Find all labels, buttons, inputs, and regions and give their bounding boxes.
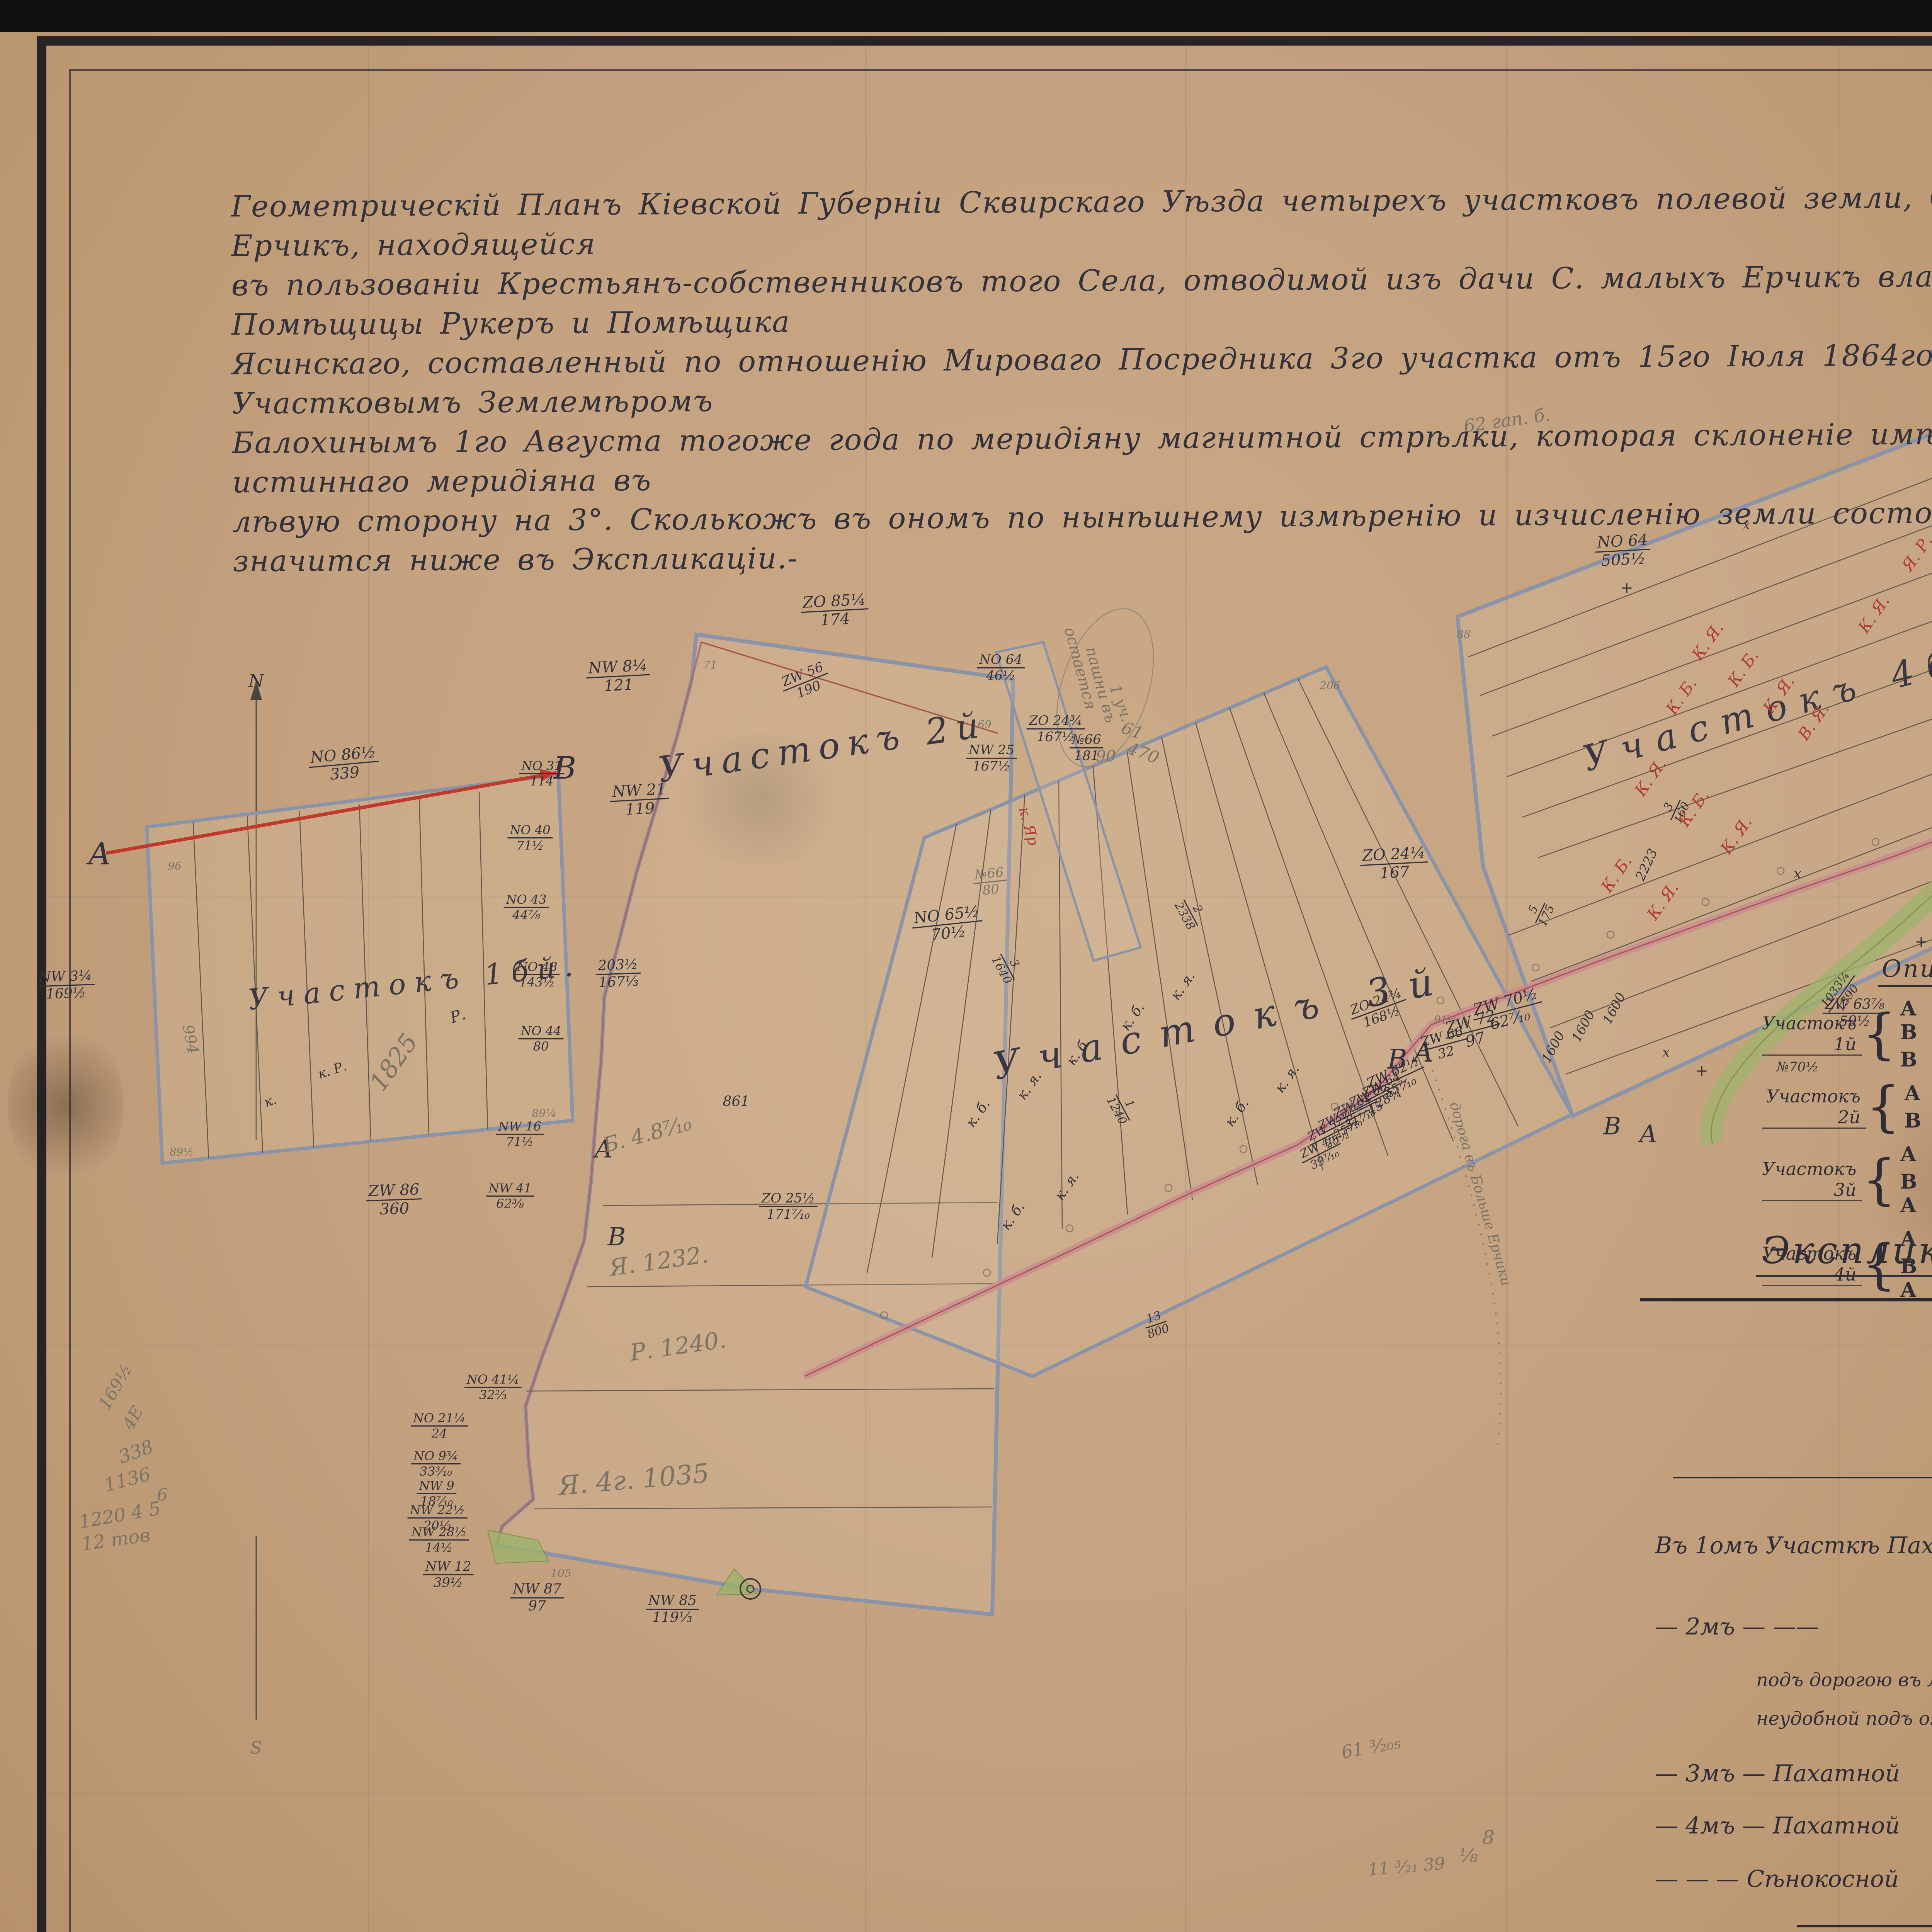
map-annotation: х bbox=[1662, 1046, 1670, 1060]
title-line-4: Балохинымъ 1го Августа тогоже года по ме… bbox=[232, 413, 1932, 502]
bearing-label: NW 8¼121 bbox=[585, 657, 651, 695]
map-annotation: 105 bbox=[551, 1568, 571, 1579]
map-annotation: N bbox=[248, 672, 264, 690]
map-annotation: 8 bbox=[1482, 1828, 1495, 1848]
bearing-label: ZW 86360 bbox=[366, 1182, 423, 1218]
adjacency-title: Описаніе смежностей bbox=[1878, 954, 1932, 987]
map-annotation: + bbox=[1620, 580, 1633, 596]
bearing-label: NW 21119 bbox=[609, 781, 670, 818]
bearing-label: NO 9¾33³⁄₁₀ bbox=[411, 1450, 461, 1478]
bearing-label: NW 1671½ bbox=[496, 1120, 544, 1148]
bearing-label: NO 6446½ bbox=[977, 653, 1025, 682]
map-sheet: 1 Геометрическій Планъ Кіевской Губерніи… bbox=[0, 12, 1932, 1932]
photo-edge-top bbox=[0, 0, 1932, 32]
title-line-1: Геометрическій Планъ Кіевской Губерніи С… bbox=[231, 177, 1932, 266]
bearing-label: ZO 85¼174 bbox=[800, 592, 869, 629]
bearing-label: NO 41¼32⅔ bbox=[464, 1373, 522, 1401]
map-annotation: S bbox=[250, 1740, 262, 1757]
bearing-label: NO 31114 bbox=[519, 760, 564, 787]
adjacency-entry: Участокъ 2й { А ВГ: Пп: Рукеръ и Ясинска… bbox=[1762, 1082, 1932, 1133]
bearing-label: NW 85119⅓ bbox=[646, 1594, 699, 1625]
bearing-label: ZO 25½171⁷⁄₁₀ bbox=[759, 1192, 818, 1221]
map-annotation: ⅛ bbox=[1459, 1846, 1478, 1866]
bearing-label: NW 3¼169½ bbox=[36, 969, 95, 1002]
map-annotation: 69 bbox=[978, 719, 992, 731]
map-annotation: А bbox=[1413, 1039, 1434, 1066]
brace: { bbox=[1866, 1084, 1900, 1130]
table-row: — 4мъ — Пахатной491951 bbox=[1640, 1812, 1932, 1848]
map-annotation: 861 bbox=[723, 1095, 750, 1109]
map-annotation: х bbox=[1743, 520, 1750, 532]
map-annotation: В bbox=[1387, 1046, 1407, 1073]
explication-table: Экспликація Десят. Сажень Въ 1омъ Участк… bbox=[1640, 1225, 1932, 1932]
map-annotation: х bbox=[1794, 867, 1801, 881]
bearing-label: NO 64505½ bbox=[1594, 532, 1651, 569]
brace: { bbox=[1862, 1157, 1896, 1203]
bearing-label: NO 86½339 bbox=[307, 744, 380, 784]
map-annotation: + bbox=[1915, 934, 1928, 950]
bearing-label: NW 8797 bbox=[510, 1582, 564, 1613]
bearing-label: NO 4344⅞ bbox=[503, 893, 549, 921]
bearing-label: ZO 24¼167 bbox=[1359, 845, 1429, 883]
title-line-5: лѣвую сторону на 3°. Сколькожъ въ ономъ … bbox=[233, 492, 1932, 581]
bearing-label: NW 25167½ bbox=[966, 743, 1017, 773]
table-row: — 3мъ — Пахатной53201 bbox=[1640, 1760, 1932, 1796]
map-annotation: В bbox=[1603, 1114, 1621, 1138]
map-annotation: 178 bbox=[1340, 1103, 1361, 1114]
explication-title: Экспликація bbox=[1756, 1229, 1932, 1277]
map-annotation: 88 bbox=[1457, 629, 1471, 640]
bearing-label: 203½167⅓ bbox=[595, 957, 641, 990]
map-title: Геометрическій Планъ Кіевской Губерніи С… bbox=[231, 177, 1932, 581]
map-annotation: 90 bbox=[1096, 749, 1116, 765]
map-annotation: 206 bbox=[1320, 680, 1340, 692]
bearing-label: №6680 bbox=[972, 865, 1009, 898]
map-annotation: В bbox=[607, 1225, 626, 1250]
table-row: — — — Сѣнокосной21857 bbox=[1640, 1866, 1932, 1901]
map-annotation: А bbox=[1639, 1121, 1658, 1146]
map-annotation: 71 bbox=[703, 660, 717, 671]
bearing-label: NW 28½14½ bbox=[409, 1526, 469, 1554]
map-annotation: 89½ bbox=[170, 1147, 194, 1158]
table-row: — 2мъ — ——43120 bbox=[1640, 1613, 1932, 1649]
bearing-label: NO 65½70½ bbox=[911, 903, 984, 945]
adjacency-entry: Участокъ 3й { А Вземли Г: Пп: Рукеръ и Я… bbox=[1762, 1143, 1932, 1217]
map-annotation: 89¼ bbox=[532, 1108, 556, 1119]
map-annotation: №70½ bbox=[1777, 1061, 1818, 1074]
map-annotation: А bbox=[88, 838, 112, 870]
map-annotation: + bbox=[1695, 1063, 1708, 1079]
title-line-2: въ пользованіи Крестьянъ-собственниковъ … bbox=[231, 255, 1932, 345]
map-annotation: 91½ bbox=[1434, 1015, 1458, 1026]
bearing-label: NW 1239½ bbox=[423, 1560, 474, 1589]
bearing-label: NO 4480 bbox=[518, 1025, 563, 1053]
table-row: неудобной подъ озерами72 bbox=[1640, 1708, 1932, 1743]
table-row: подъ дорогою въ лѣсѣ448 bbox=[1640, 1669, 1932, 1705]
bearing-label: NW 4162⅜ bbox=[486, 1182, 534, 1210]
bearing-label: NO 4071½ bbox=[507, 824, 553, 852]
bearing-label: NO 48143½ bbox=[514, 961, 560, 988]
map-annotation: 96 bbox=[168, 861, 182, 872]
table-row: Въ 1омъ Участкѣ Пахатной211527 bbox=[1640, 1532, 1932, 1568]
title-line-3: Ясинскаго, составленный по отношенію Мир… bbox=[232, 334, 1932, 423]
bearing-label: NO 21¼24 bbox=[411, 1412, 468, 1440]
